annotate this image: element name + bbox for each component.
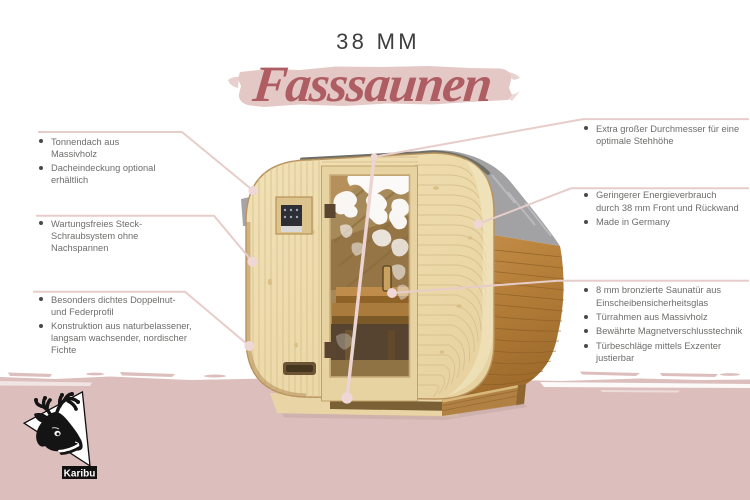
svg-text:Karibu: Karibu: [64, 469, 96, 480]
